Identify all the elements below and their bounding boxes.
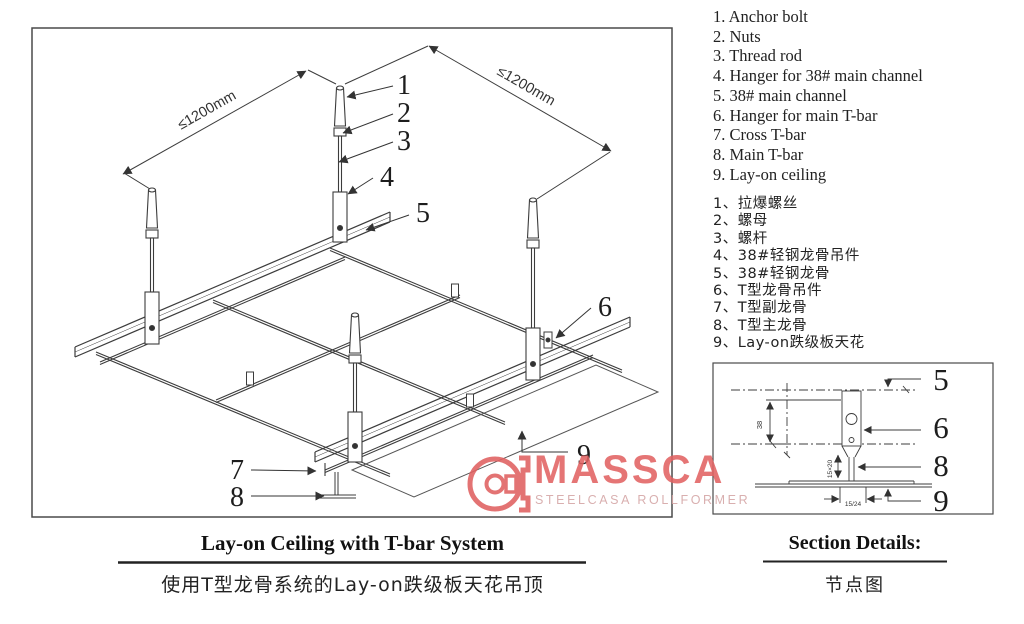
legend-en-item: 5. 38# main channel [713, 86, 923, 106]
section-dim-stem: 15×20 [827, 459, 834, 478]
section-dim-width: 15/24 [845, 501, 862, 508]
callout-3: 3 [397, 126, 411, 157]
callout-4: 4 [380, 162, 394, 193]
section-callout-numbers: 5 6 8 9 [933, 362, 949, 518]
hanger-near [348, 313, 362, 462]
t-bar-clips [247, 284, 553, 407]
callout-5: 5 [416, 198, 430, 229]
legend-zh-item: 4、38#轻钢龙骨吊件 [713, 248, 865, 265]
massca-logo-icon [462, 446, 532, 520]
section-title: Section Details: [757, 532, 953, 555]
legend-english: 1. Anchor bolt 2. Nuts 3. Thread rod 4. … [713, 7, 923, 184]
callout-2: 2 [397, 98, 411, 129]
section-dim-height: 38 [755, 421, 764, 429]
legend-en-item: 2. Nuts [713, 27, 923, 47]
legend-en-item: 6. Hanger for main T-bar [713, 106, 923, 126]
legend-zh-item: 5、38#轻钢龙骨 [713, 266, 865, 283]
massca-logo-tagline: STEELCASA ROLLFORMER [535, 493, 750, 507]
t-bar-end-section [318, 472, 356, 498]
legend-zh-item: 8、T型主龙骨 [713, 318, 865, 335]
callout-leaders [251, 86, 591, 496]
legend-en-item: 8. Main T-bar [713, 145, 923, 165]
section-subtitle: 节点图 [757, 571, 953, 597]
legend-zh-item: 1、拉爆螺丝 [713, 196, 865, 213]
section-drawing [731, 379, 932, 503]
main-title-chinese: 使用T型龙骨系统的Lay-on跌级板天花吊顶 [60, 570, 645, 597]
legend-en-item: 9. Lay-on ceiling [713, 165, 923, 185]
legend-zh-item: 3、螺杆 [713, 231, 865, 248]
massca-logo-wordmark: MASSCA [534, 448, 725, 493]
massca-logo: MASSCA STEELCASA ROLLFORMER [462, 446, 752, 521]
callout-6: 6 [598, 292, 612, 323]
section-callout-6: 6 [933, 410, 949, 445]
hanger-left [145, 188, 159, 344]
callout-1: 1 [397, 70, 411, 101]
legend-en-item: 7. Cross T-bar [713, 125, 923, 145]
legend-zh-item: 6、T型龙骨吊件 [713, 283, 865, 300]
legend-zh-item: 7、T型副龙骨 [713, 300, 865, 317]
legend-en-item: 3. Thread rod [713, 46, 923, 66]
hanger-far [333, 86, 347, 242]
section-callout-8: 8 [933, 448, 949, 483]
section-callout-9: 9 [933, 483, 949, 518]
legend-chinese: 1、拉爆螺丝 2、螺母 3、螺杆 4、38#轻钢龙骨吊件 5、38#轻钢龙骨 6… [713, 196, 865, 353]
legend-en-item: 1. Anchor bolt [713, 7, 923, 27]
legend-zh-item: 9、Lay-on跌级板天花 [713, 335, 865, 352]
dim-label-right: ≤1200mm [494, 64, 558, 110]
legend-en-item: 4. Hanger for 38# main channel [713, 66, 923, 86]
main-title-english: Lay-on Ceiling with T-bar System [60, 531, 645, 556]
technical-drawing-sheet: ≤1200mm ≤1200mm [0, 0, 1024, 624]
section-callout-5: 5 [933, 362, 949, 397]
callout-8: 8 [230, 482, 244, 513]
legend-zh-item: 2、螺母 [713, 213, 865, 230]
hanger-right [526, 198, 540, 380]
